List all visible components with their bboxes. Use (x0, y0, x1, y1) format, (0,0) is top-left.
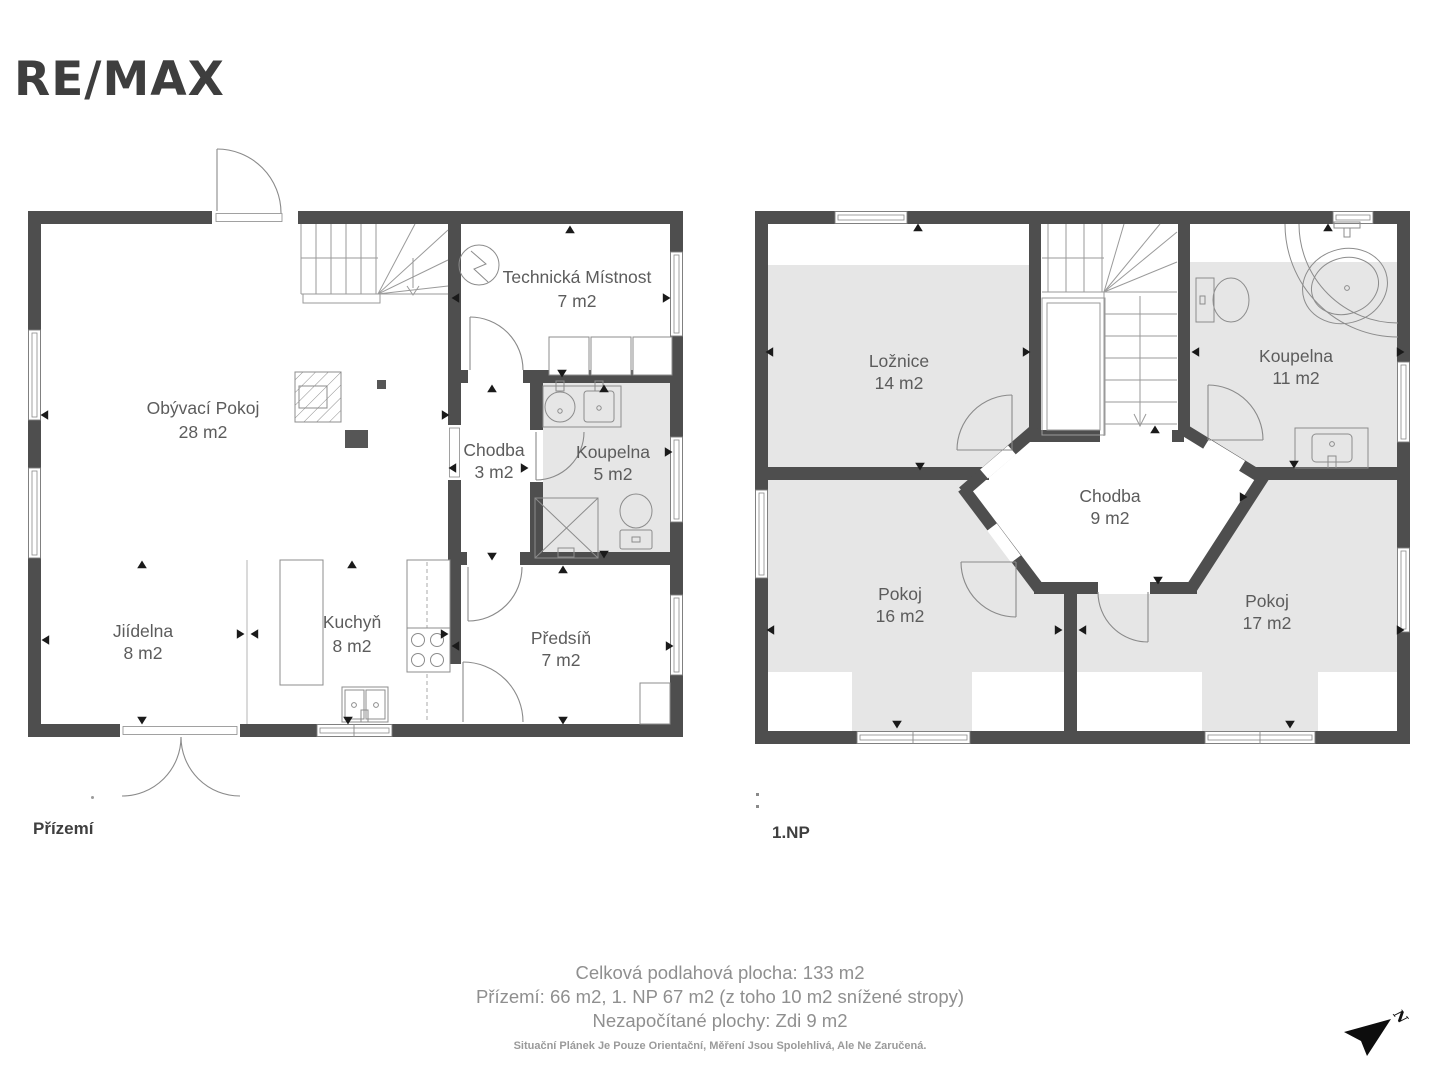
room-name: Chodba (463, 440, 525, 460)
room-area: 8 m2 (124, 643, 163, 663)
artifact-dot (91, 796, 94, 799)
room-area: 11 m2 (1272, 368, 1319, 388)
room-area: 3 m2 (475, 462, 514, 482)
floor-plan-first: Ložnice 14 m2 Koupelna 11 m2 Chodba 9 m2… (748, 200, 1420, 760)
floor-label-first: 1.NP (772, 823, 810, 843)
room-name: Obývací Pokoj (147, 398, 260, 418)
room-area: 7 m2 (558, 291, 597, 311)
room-area: 5 m2 (594, 464, 633, 484)
room-name: Pokoj (878, 584, 922, 604)
room-name: Koupelna (1259, 346, 1333, 366)
room-name: Chodba (1079, 486, 1141, 506)
room-name: Jiídelna (113, 621, 174, 641)
boiler-icon (459, 245, 499, 285)
remax-logo: RE/MAX (14, 52, 225, 107)
room-name: Pokoj (1245, 591, 1289, 611)
north-label: N (1389, 1006, 1411, 1028)
artifact-colon (756, 793, 759, 808)
room-area: 8 m2 (333, 636, 372, 656)
room-area: 9 m2 (1091, 508, 1130, 528)
summary-excluded: Nezapočítané plochy: Zdi 9 m2 (0, 1009, 1440, 1033)
floor-label-ground: Přízemí (33, 819, 93, 839)
room-area: 16 m2 (876, 606, 925, 626)
room-area: 28 m2 (179, 422, 228, 442)
room-name: Technická Místnost (503, 267, 652, 287)
room-area: 14 m2 (875, 373, 924, 393)
floor-plan-ground: Obývací Pokoj 28 m2 Technická Místnost 7… (20, 140, 710, 810)
room-name: Koupelna (576, 442, 650, 462)
floorplan-page: RE/MAX (0, 0, 1440, 1080)
room-name: Kuchyň (323, 612, 381, 632)
hall-cabinet-icon (640, 683, 670, 724)
room-area: 17 m2 (1243, 613, 1292, 633)
room-name: Ložnice (869, 351, 929, 371)
kitchen-sink-icon (342, 687, 388, 722)
north-arrow-icon: N (1330, 990, 1420, 1075)
cabinets-icon (549, 337, 672, 375)
summary-block: Celková podlahová plocha: 133 m2 Přízemí… (0, 961, 1440, 1052)
summary-total: Celková podlahová plocha: 133 m2 (0, 961, 1440, 985)
stairs-icon-ground (301, 224, 448, 303)
room-name: Předsíň (531, 628, 591, 648)
fireplace-icon (295, 372, 386, 448)
summary-per-floor: Přízemí: 66 m2, 1. NP 67 m2 (z toho 10 m… (0, 985, 1440, 1009)
room-area: 7 m2 (542, 650, 581, 670)
summary-disclaimer: Situační Plánek Je Pouze Orientační, Měř… (0, 1040, 1440, 1052)
